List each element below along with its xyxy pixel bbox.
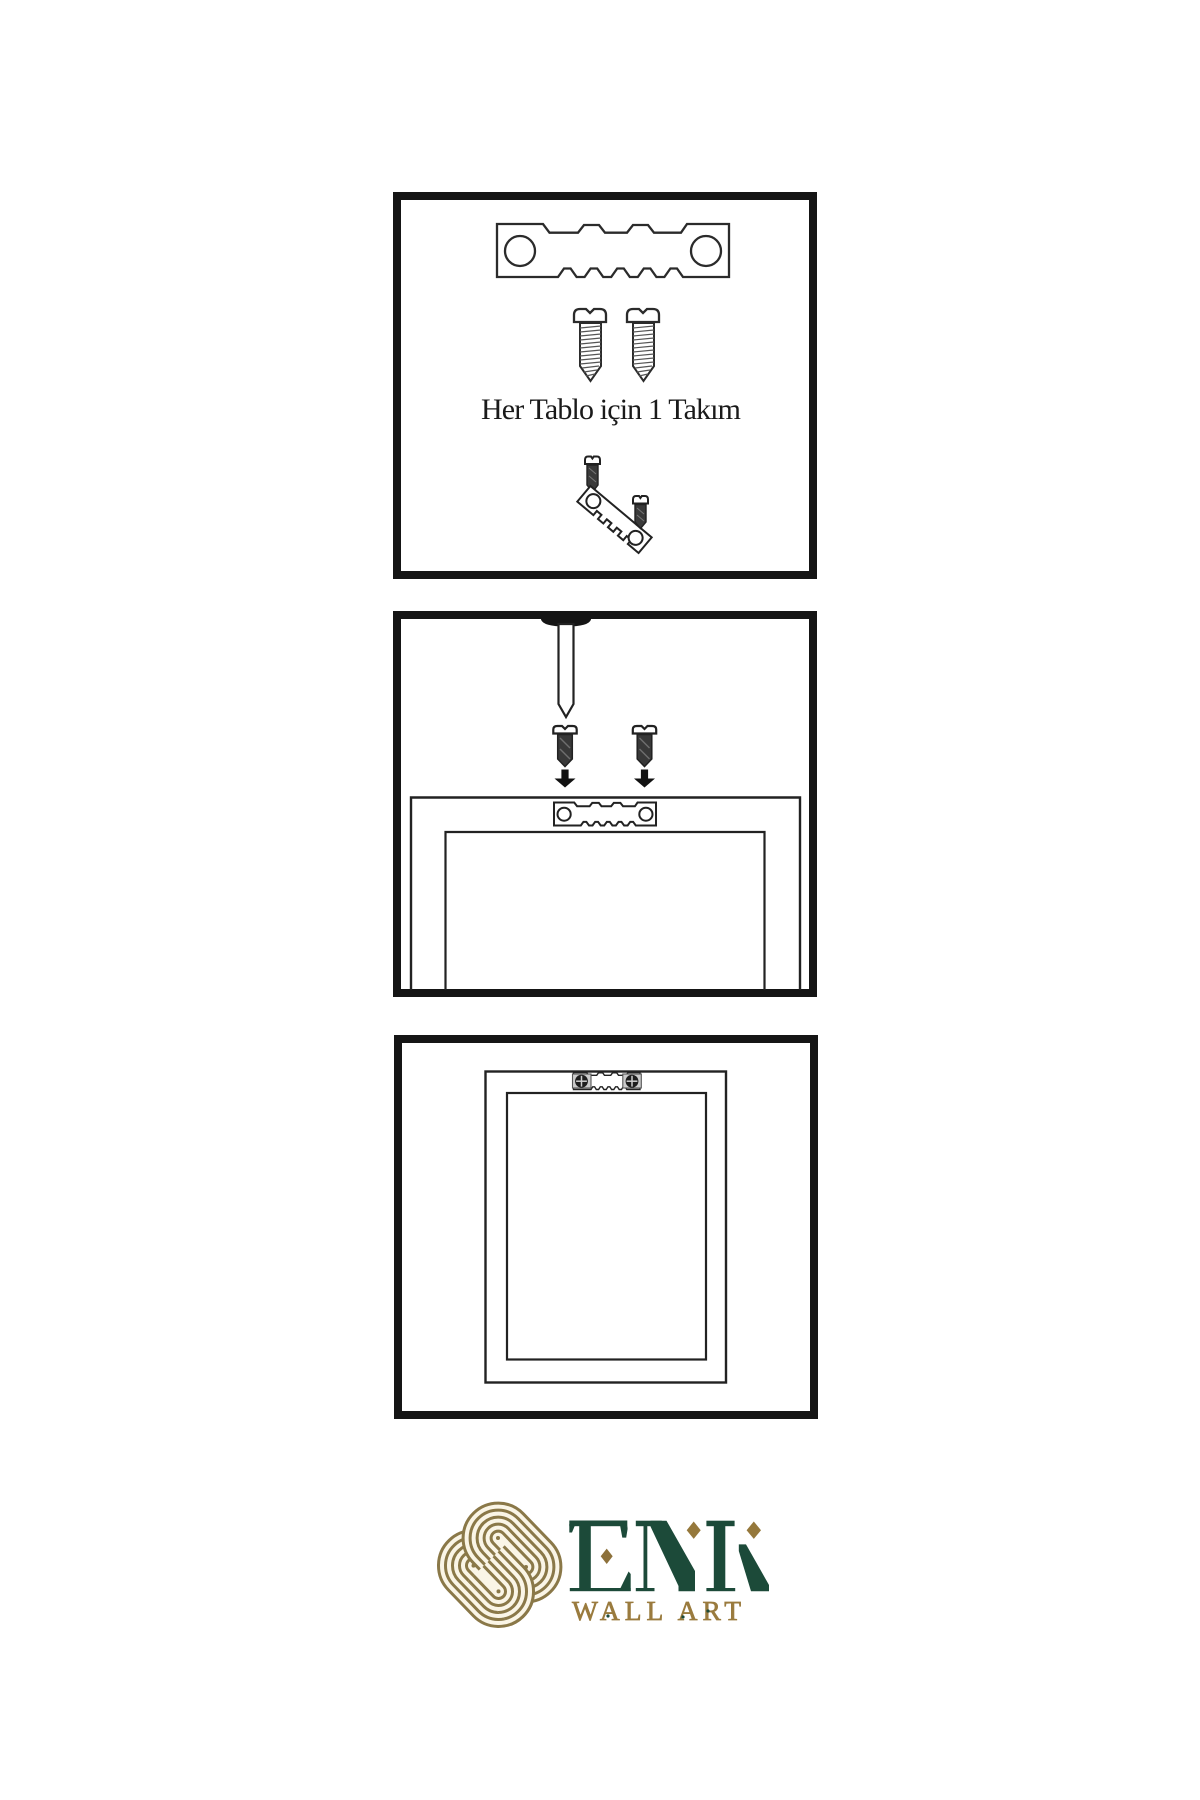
svg-text:WALL ART: WALL ART <box>572 1595 745 1626</box>
svg-text:Her Tablo için 1 Takım: Her Tablo için 1 Takım <box>481 393 741 426</box>
